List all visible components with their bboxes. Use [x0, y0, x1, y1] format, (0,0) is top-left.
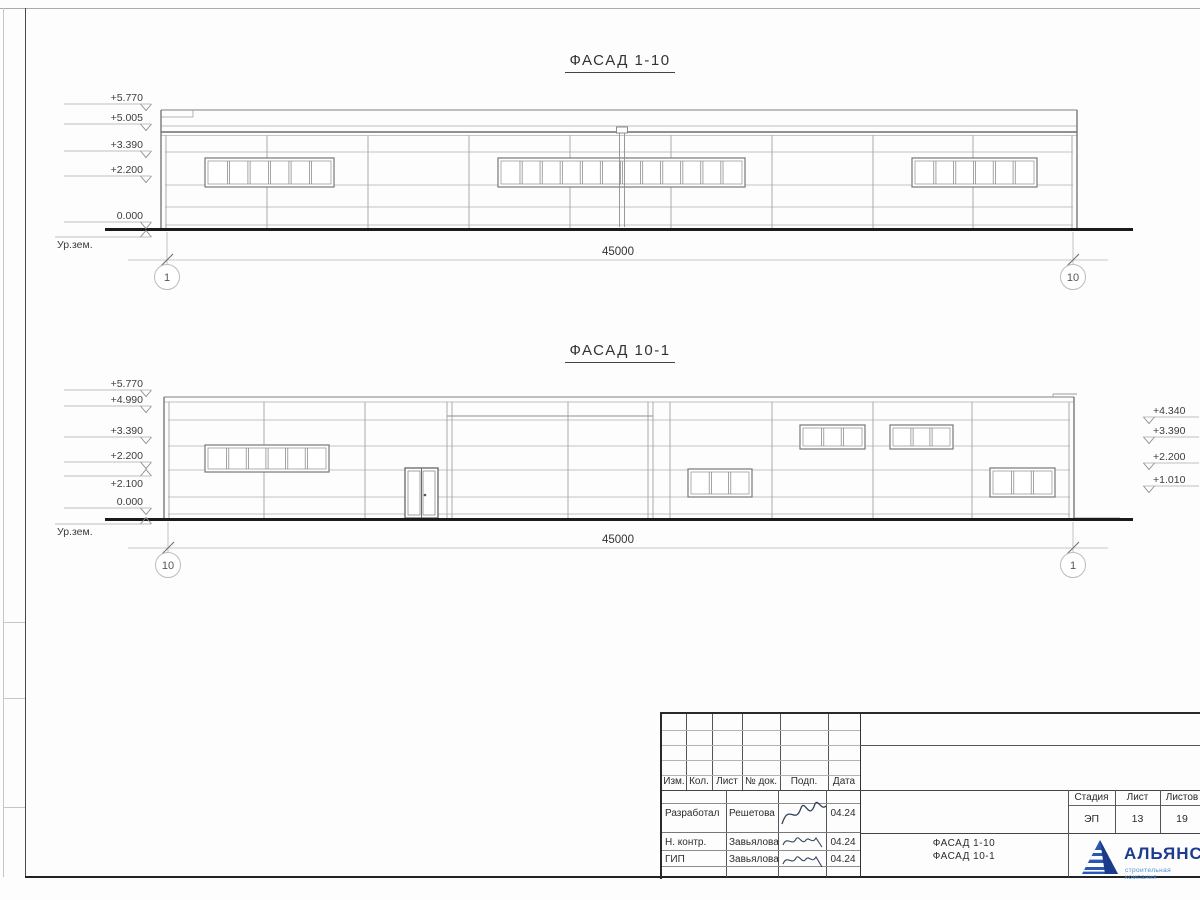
svg-text:Ур.зем.: Ур.зем. — [57, 239, 93, 251]
tb-role: Разработал — [665, 808, 725, 819]
svg-text:+4.990: +4.990 — [111, 394, 144, 406]
svg-text:10: 10 — [1067, 272, 1079, 284]
window-band — [205, 445, 329, 472]
facade-10-1-title-text: ФАСАД 10-1 — [565, 342, 674, 363]
tb-grid-line — [662, 745, 860, 746]
tb-col-ndok: № док. — [742, 776, 780, 787]
tb-grid-line — [662, 790, 1200, 791]
tb-date: 04.24 — [826, 808, 860, 819]
svg-text:1: 1 — [164, 272, 170, 284]
window-band — [890, 425, 953, 449]
sheet-frame-left — [25, 8, 26, 877]
dimension-line: 45000 — [128, 232, 1108, 266]
elevation-mark: +2.100 — [64, 470, 152, 491]
elevation-mark: +2.200 — [64, 450, 152, 469]
sheet-frame-top — [0, 8, 1200, 9]
window-band — [990, 468, 1055, 497]
grid-axis-bubble: 1 — [155, 265, 180, 290]
svg-text:+3.390: +3.390 — [111, 425, 144, 437]
elevation-mark: +5.770 — [64, 92, 152, 111]
svg-text:1: 1 — [1070, 560, 1076, 572]
signature-icon — [780, 833, 826, 851]
svg-text:0.000: 0.000 — [117, 210, 143, 222]
svg-text:+1.010: +1.010 — [1153, 474, 1186, 486]
tb-col-list: Лист — [712, 776, 742, 787]
title-block: Изм. Кол. Лист № док. Подп. Дата Разрабо… — [660, 712, 1200, 879]
svg-text:+2.200: +2.200 — [1153, 451, 1186, 463]
grid-axis-bubble: 10 — [1061, 265, 1086, 290]
grid-axis-bubble: 1 — [1061, 553, 1086, 578]
elevation-mark: 0.000 — [64, 496, 152, 515]
tb-date: 04.24 — [826, 854, 860, 865]
tb-date: 04.24 — [826, 837, 860, 848]
elevation-mark: +2.200 — [64, 164, 152, 183]
svg-text:Ур.зем.: Ур.зем. — [57, 526, 93, 538]
window-band — [912, 158, 1037, 187]
tb-grid-line — [662, 760, 860, 761]
doc-title-line-2: ФАСАД 10-1 — [860, 851, 1068, 862]
tb-role: ГИП — [665, 854, 725, 865]
svg-text:+2.200: +2.200 — [111, 164, 144, 176]
elevation-mark: +4.990 — [64, 394, 152, 413]
margin-strip-divider — [3, 622, 25, 623]
elevation-mark: 0.000 — [64, 210, 152, 229]
tb-col-kol: Кол. — [686, 776, 712, 787]
sheets-label: Листов — [1160, 792, 1200, 803]
sheet-value: 13 — [1115, 813, 1160, 825]
svg-text:+3.390: +3.390 — [1153, 425, 1186, 437]
svg-text:+3.390: +3.390 — [111, 139, 144, 151]
svg-text:+2.200: +2.200 — [111, 450, 144, 462]
tb-col-data: Дата — [828, 776, 860, 787]
tb-role: Н. контр. — [665, 837, 725, 848]
grid-axis-bubble: 10 — [156, 553, 181, 578]
elevation-mark: +3.390 — [64, 425, 152, 444]
dimension-line: 45000 — [128, 522, 1108, 554]
logo-pyramid-icon — [1080, 838, 1120, 876]
window-band — [688, 469, 752, 497]
facade-1-10-title: ФАСАД 1-10 — [520, 52, 720, 69]
facade-10-1-drawing: 45000101+5.770+4.990+3.390+2.200+2.1000.… — [55, 378, 1199, 578]
margin-strip-divider — [3, 698, 25, 699]
tb-grid-line — [662, 850, 860, 851]
stage-value: ЭП — [1068, 813, 1115, 825]
signature-icon — [778, 796, 828, 832]
stage-label: Стадия — [1068, 792, 1115, 803]
elevation-mark: +3.390 — [1143, 425, 1199, 444]
facade-1-10-drawing: 45000110+5.770+5.005+3.390+2.2000.000Ур.… — [55, 92, 1133, 290]
tb-grid-line — [662, 730, 860, 731]
svg-text:+5.770: +5.770 — [111, 378, 144, 390]
tb-grid-line — [860, 833, 1200, 834]
tb-col-izm: Изм. — [662, 776, 686, 787]
sheet-label: Лист — [1115, 792, 1160, 803]
tb-grid-line — [662, 803, 860, 804]
logo-name: АЛЬЯНС — [1124, 844, 1200, 864]
svg-text:+4.340: +4.340 — [1153, 405, 1186, 417]
window-band — [800, 425, 865, 449]
tb-name: Завьялова — [729, 854, 777, 865]
svg-text:10: 10 — [162, 560, 174, 572]
elevation-mark: +4.340 — [1143, 405, 1199, 424]
elevation-mark: +2.200 — [1143, 451, 1199, 470]
tb-grid-line — [860, 745, 1200, 746]
elevation-mark: +3.390 — [64, 139, 152, 158]
tb-grid-line — [662, 832, 860, 833]
svg-text:+5.005: +5.005 — [111, 112, 144, 124]
logo-subtitle: строительная компания — [1125, 867, 1200, 879]
tb-grid-line — [662, 866, 860, 867]
facade-10-1-title: ФАСАД 10-1 — [520, 342, 720, 359]
facade-1-10-title-text: ФАСАД 1-10 — [565, 52, 674, 73]
svg-text:45000: 45000 — [602, 534, 634, 546]
entrance-door — [405, 468, 438, 518]
svg-text:0.000: 0.000 — [117, 496, 143, 508]
svg-text:+2.100: +2.100 — [111, 478, 144, 490]
tb-name: Решетова — [729, 808, 777, 819]
elevation-mark: Ур.зем. — [55, 231, 152, 252]
window-band — [498, 158, 745, 187]
sheet-edge-left — [3, 8, 4, 877]
svg-text:+5.770: +5.770 — [111, 92, 144, 104]
drawing-sheet: 45000110+5.770+5.005+3.390+2.2000.000Ур.… — [0, 0, 1200, 900]
margin-strip-divider — [3, 807, 25, 808]
tb-name: Завьялова — [729, 837, 777, 848]
tb-col-podp: Подп. — [780, 776, 828, 787]
svg-text:45000: 45000 — [602, 246, 634, 258]
elevation-mark: +5.005 — [64, 112, 152, 131]
elevation-mark: +1.010 — [1143, 474, 1199, 493]
window-band — [205, 158, 334, 187]
tb-grid-line — [1068, 805, 1200, 806]
signature-icon — [780, 851, 826, 871]
doc-title-line-1: ФАСАД 1-10 — [860, 838, 1068, 849]
sheets-value: 19 — [1160, 813, 1200, 825]
tb-grid-line — [1068, 790, 1069, 877]
